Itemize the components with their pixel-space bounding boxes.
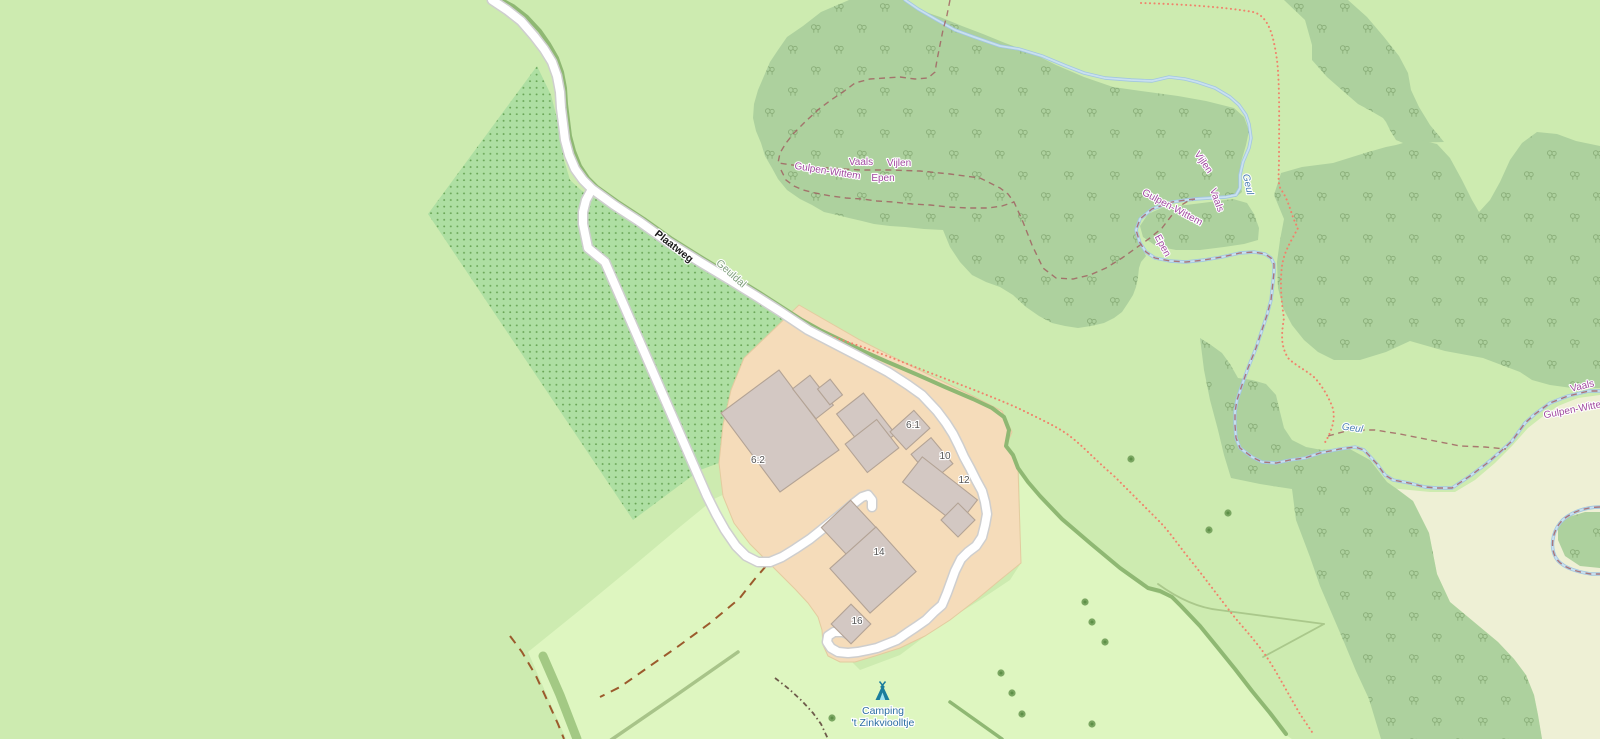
svg-text:'t Zinkvioolltje: 't Zinkvioolltje [852, 717, 915, 729]
svg-text:12: 12 [958, 475, 970, 486]
svg-text:Camping: Camping [862, 705, 904, 717]
svg-text:6:2: 6:2 [751, 455, 765, 466]
svg-text:Epen: Epen [871, 173, 894, 184]
svg-text:Vijlen: Vijlen [887, 158, 911, 169]
svg-text:16: 16 [851, 616, 863, 627]
svg-text:10: 10 [939, 451, 951, 462]
svg-text:14: 14 [873, 547, 885, 558]
svg-text:Vaals: Vaals [849, 157, 873, 168]
svg-text:6:1: 6:1 [906, 420, 920, 431]
